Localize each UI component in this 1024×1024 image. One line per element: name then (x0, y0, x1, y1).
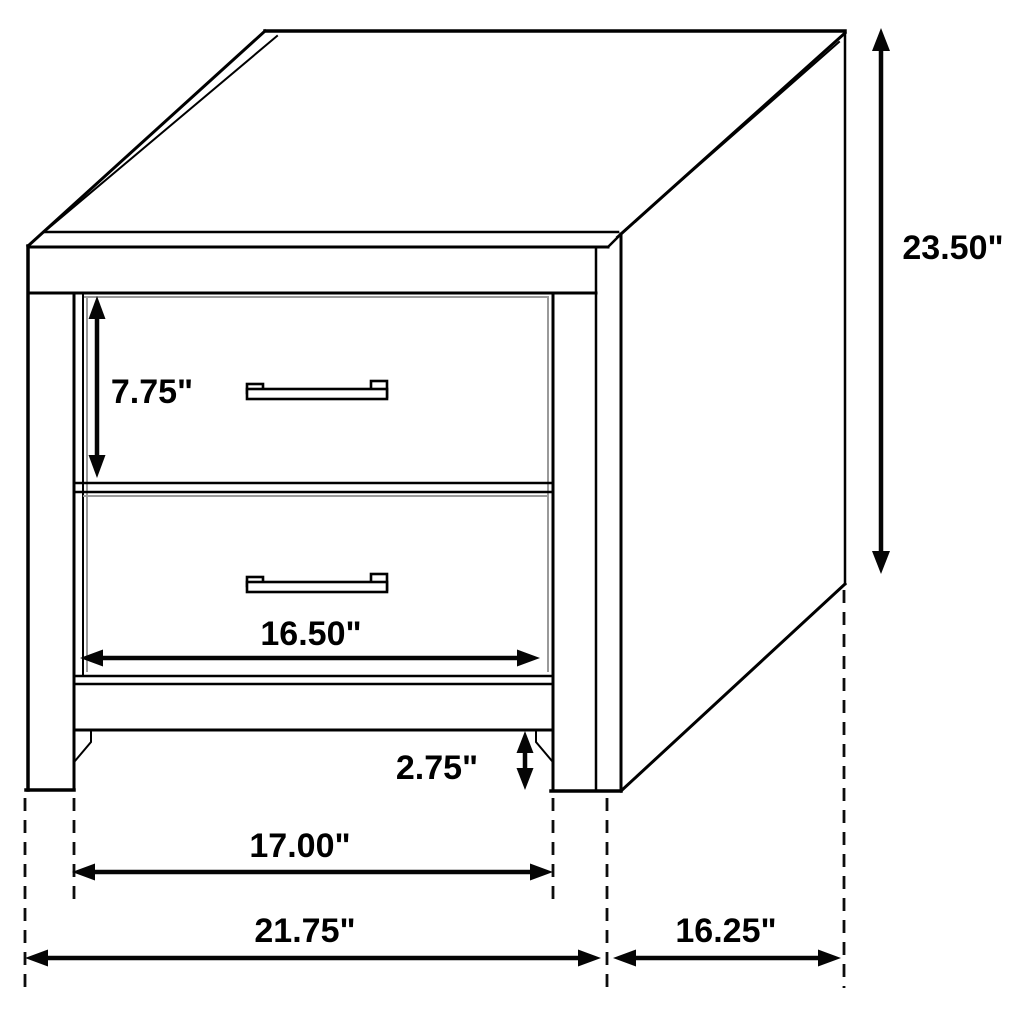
dim-overall-height-label: 23.50" (902, 229, 1003, 267)
top-panel (28, 31, 845, 247)
diagram-canvas: 23.50" 7.75" 16.50" 2.75" 17.00" 21.75" … (0, 0, 1024, 1024)
dim-overall-height: 23.50" (872, 28, 1004, 574)
dim-top-drawer-height-label: 7.75" (111, 373, 193, 411)
drawer-handle-bottom (247, 574, 387, 592)
dim-inner-leg-span: 17.00" (72, 827, 553, 881)
base-rail (74, 730, 553, 761)
nightstand-dimension-diagram: 23.50" 7.75" 16.50" 2.75" 17.00" 21.75" … (0, 0, 1024, 1024)
dim-base-clearance: 2.75" (396, 731, 534, 790)
dim-inner-leg-span-label: 17.00" (249, 827, 350, 865)
legs (26, 790, 621, 791)
dim-side-depth: 16.25" (613, 912, 841, 967)
dim-overall-front-width-label: 21.75" (254, 912, 355, 950)
dim-top-drawer-height: 7.75" (89, 296, 194, 478)
dim-side-depth-label: 16.25" (675, 912, 776, 950)
dim-drawer-front-width: 16.50" (80, 615, 540, 667)
drawer-handle-top (247, 381, 387, 399)
dim-drawer-front-width-label: 16.50" (260, 615, 361, 653)
dim-base-clearance-label: 2.75" (396, 749, 478, 787)
front-frame (28, 246, 596, 791)
dim-overall-front-width: 21.75" (25, 912, 601, 967)
